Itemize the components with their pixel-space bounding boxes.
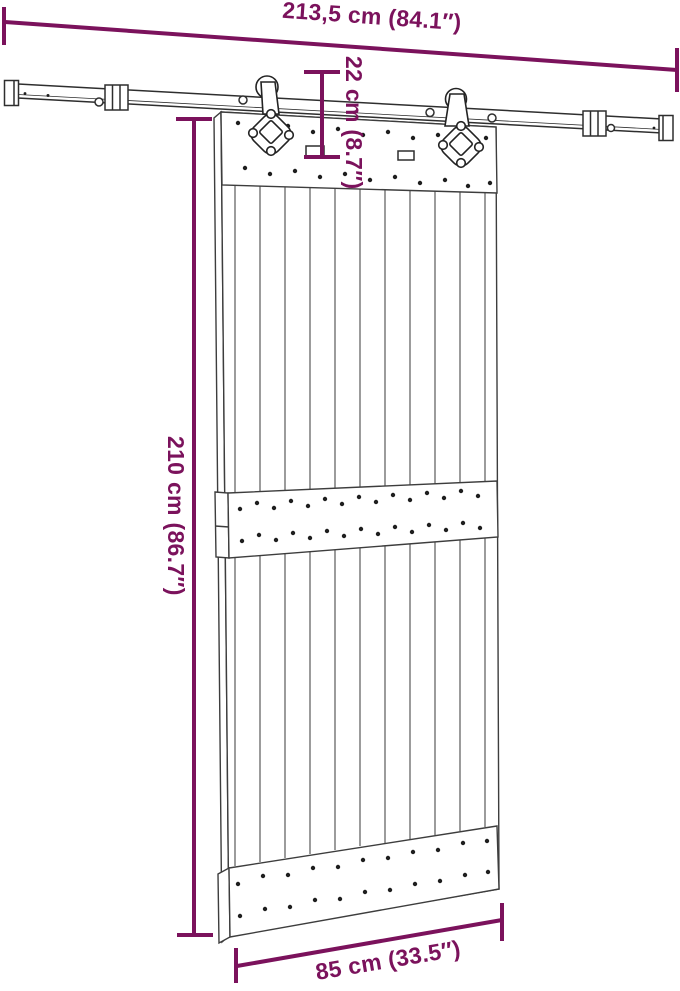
rail-joint-sleeve	[105, 85, 128, 110]
door-height-label: 210 cm (86.7″)	[161, 436, 191, 596]
door-middle-board-tab	[215, 492, 229, 558]
hanger-strap	[445, 94, 469, 126]
door-bottom-board-tab	[218, 868, 230, 943]
barn-door	[214, 112, 499, 943]
rail-joint-sleeve	[583, 111, 606, 136]
barn-door-dimension-diagram: 213,5 cm (84.1″) 22 cm (8.7″) 210 cm (86…	[0, 0, 680, 991]
drop-height-label: 22 cm (8.7″)	[339, 56, 369, 190]
rail-spacer-block	[398, 151, 414, 160]
